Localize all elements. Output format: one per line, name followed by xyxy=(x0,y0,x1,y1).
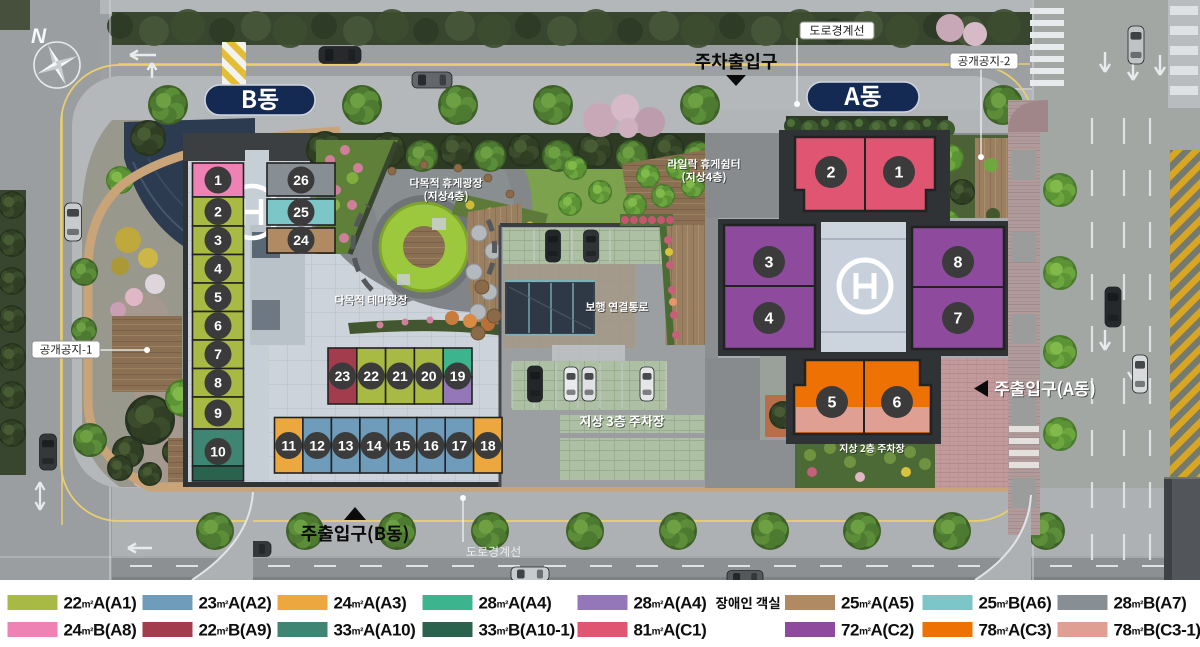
svg-text:33m²B(A10-1): 33m²B(A10-1) xyxy=(479,621,575,640)
svg-text:6: 6 xyxy=(214,318,222,334)
svg-text:4: 4 xyxy=(765,311,774,328)
svg-text:7: 7 xyxy=(214,346,222,362)
svg-text:17: 17 xyxy=(452,437,468,453)
svg-text:4: 4 xyxy=(214,261,222,277)
svg-text:1: 1 xyxy=(895,165,904,182)
svg-text:81m²A(C1): 81m²A(C1) xyxy=(634,621,707,640)
svg-text:7: 7 xyxy=(954,311,963,328)
svg-text:6: 6 xyxy=(893,395,902,412)
svg-text:72m²A(C2): 72m²A(C2) xyxy=(841,621,914,640)
svg-text:23: 23 xyxy=(335,368,351,384)
svg-text:24m²B(A8): 24m²B(A8) xyxy=(64,621,137,640)
svg-text:2: 2 xyxy=(827,165,836,182)
svg-text:78m²B(C3-1): 78m²B(C3-1) xyxy=(1114,621,1200,640)
svg-text:78m²A(C3): 78m²A(C3) xyxy=(979,621,1052,640)
svg-text:8: 8 xyxy=(954,255,963,272)
svg-text:N: N xyxy=(31,25,47,48)
svg-text:18: 18 xyxy=(480,437,496,453)
svg-text:10: 10 xyxy=(210,443,226,459)
svg-text:1: 1 xyxy=(214,172,222,188)
svg-text:22: 22 xyxy=(363,368,379,384)
svg-text:25: 25 xyxy=(293,204,309,220)
svg-text:25m²B(A6): 25m²B(A6) xyxy=(979,594,1052,613)
svg-text:25m²A(A5): 25m²A(A5) xyxy=(841,594,914,613)
svg-text:2: 2 xyxy=(214,203,222,219)
svg-text:26: 26 xyxy=(293,172,309,188)
svg-text:16: 16 xyxy=(423,437,439,453)
svg-text:23m²A(A2): 23m²A(A2) xyxy=(199,594,272,613)
svg-text:13: 13 xyxy=(338,437,354,453)
svg-text:24m²A(A3): 24m²A(A3) xyxy=(334,594,407,613)
svg-text:14: 14 xyxy=(366,437,382,453)
svg-text:9: 9 xyxy=(214,405,222,421)
svg-text:5: 5 xyxy=(214,289,222,305)
svg-text:28m²B(A7): 28m²B(A7) xyxy=(1114,594,1187,613)
svg-text:33m²A(A10): 33m²A(A10) xyxy=(334,621,416,640)
svg-text:28m²A(A4): 28m²A(A4) xyxy=(634,594,707,613)
svg-text:3: 3 xyxy=(765,255,774,272)
svg-text:15: 15 xyxy=(395,437,411,453)
svg-text:22m²B(A9): 22m²B(A9) xyxy=(199,621,272,640)
svg-text:8: 8 xyxy=(214,375,222,391)
svg-text:21: 21 xyxy=(392,368,408,384)
svg-text:12: 12 xyxy=(309,437,325,453)
svg-text:24: 24 xyxy=(293,232,309,248)
svg-text:19: 19 xyxy=(450,368,466,384)
svg-text:20: 20 xyxy=(421,368,437,384)
svg-text:3: 3 xyxy=(214,232,222,248)
svg-text:5: 5 xyxy=(828,395,837,412)
svg-text:28m²A(A4): 28m²A(A4) xyxy=(479,594,552,613)
svg-text:11: 11 xyxy=(281,437,296,453)
svg-text:22m²A(A1): 22m²A(A1) xyxy=(64,594,137,613)
